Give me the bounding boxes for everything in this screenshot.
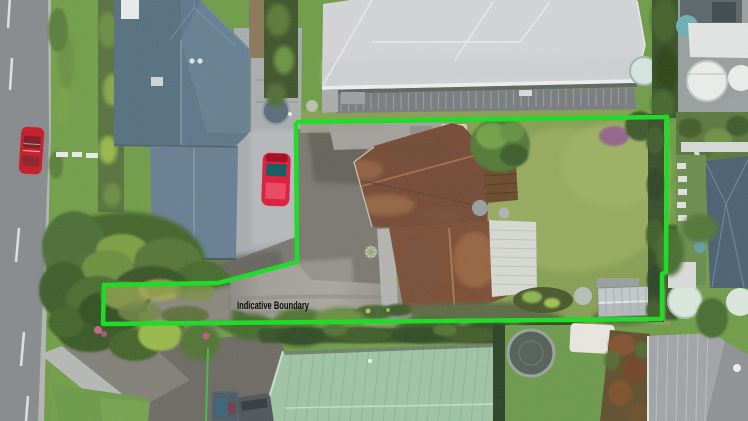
svg-text:Indicative Boundary: Indicative Boundary bbox=[237, 300, 310, 312]
